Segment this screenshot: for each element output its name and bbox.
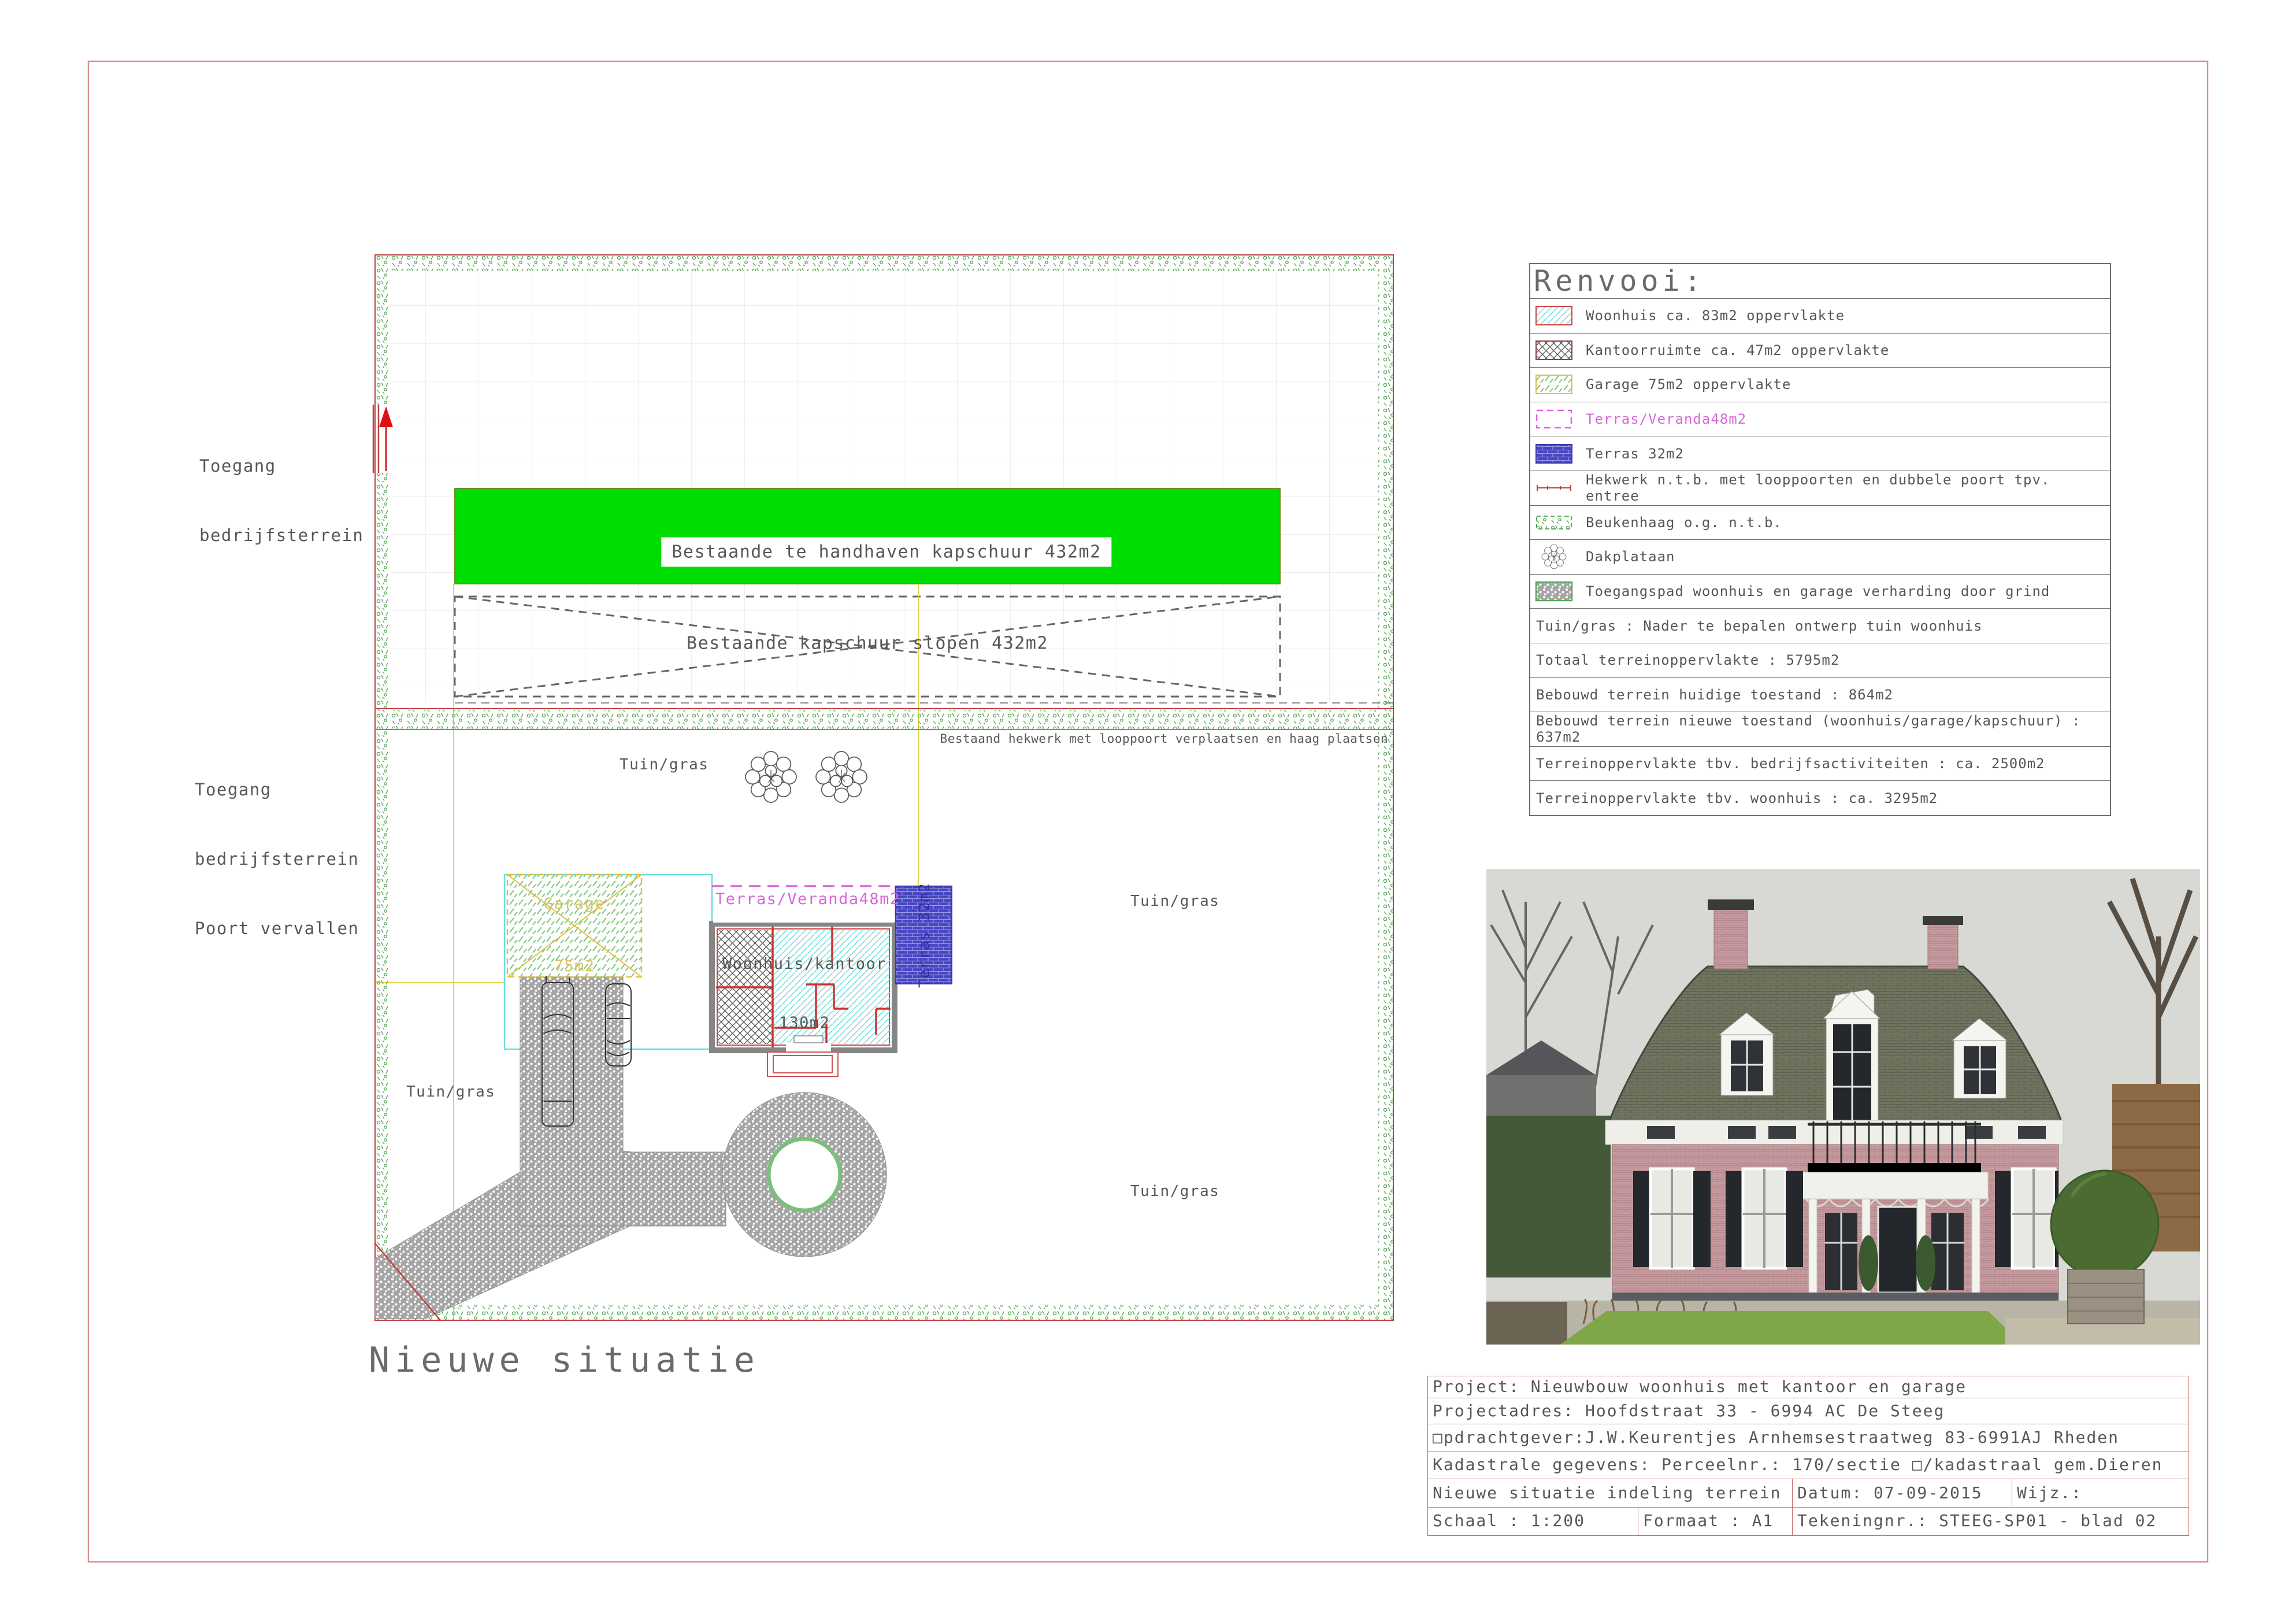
legend-row: Hekwerk n.t.b. met looppoorten en dubbel… bbox=[1530, 471, 2110, 506]
porch bbox=[1800, 1172, 1989, 1296]
legend-row: Dakplataan bbox=[1530, 540, 2110, 575]
title-block: Project: Nieuwbouw woonhuis met kantoor … bbox=[1427, 1376, 2189, 1536]
project-address: Projectadres: Hoofdstraat 33 - 6994 AC D… bbox=[1428, 1398, 2189, 1424]
topiary-cone-icon bbox=[1916, 1235, 1935, 1291]
date: Datum: 07-09-2015 bbox=[1792, 1479, 2012, 1507]
revision: Wijz.: bbox=[2012, 1479, 2189, 1507]
beukenhaag-swatch-icon bbox=[1530, 512, 1586, 534]
veranda-dashed-swatch-icon bbox=[1530, 408, 1586, 430]
topiary-ball-icon bbox=[2051, 1171, 2158, 1278]
legend-row: Bebouwd terrein nieuwe toestand (woonhui… bbox=[1530, 712, 2110, 747]
grind-gravel-swatch-icon bbox=[1530, 580, 1586, 602]
drawing-name: Nieuwe situatie indeling terrein bbox=[1428, 1479, 1792, 1507]
topiary-cone-icon bbox=[1859, 1235, 1878, 1291]
access-label-bottom: Toegang bedrijfsterrein Poort vervallen bbox=[195, 732, 359, 963]
woonhuis-label: Woonhuis/kantoor 130m2 bbox=[722, 915, 886, 1053]
kapschuur-keep-label: Bestaande te handhaven kapschuur 432m2 bbox=[661, 538, 1111, 567]
woonhuis-hatch-swatch-icon bbox=[1530, 305, 1586, 327]
terras-solid-swatch-icon bbox=[1530, 443, 1586, 465]
dakplataan-tree-swatch-icon bbox=[1530, 544, 1586, 569]
format: Formaat : A1 bbox=[1638, 1508, 1792, 1535]
legend-table: Renvooi: Woonhuis ca. 83m2 oppervlakte K… bbox=[1529, 263, 2111, 816]
entrance-porch bbox=[767, 1052, 838, 1076]
kantoor-crosshatch-swatch-icon bbox=[1530, 339, 1586, 361]
cadastral-data: Kadastrale gegevens: Perceelnr.: 170/sec… bbox=[1428, 1451, 2189, 1479]
legend-row: Garage 75m2 oppervlakte bbox=[1530, 368, 2110, 402]
legend-row: Tuin/gras : Nader te bepalen ontwerp tui… bbox=[1530, 609, 2110, 643]
site-plan bbox=[373, 255, 1393, 1320]
legend-row: Terras 32m2 bbox=[1530, 436, 2110, 471]
legend-row: Terreinoppervlakte tbv. woonhuis : ca. 3… bbox=[1530, 781, 2110, 815]
planter-box bbox=[2068, 1269, 2144, 1324]
garage-label: Garage 75m2 bbox=[544, 852, 606, 998]
gate-bedrijfsterrein bbox=[373, 405, 393, 473]
veranda-label: Terras/Veranda48m2 bbox=[715, 890, 900, 908]
legend-row: Terras/Veranda48m2 bbox=[1530, 402, 2110, 437]
plan-title: Nieuwe situatie bbox=[369, 1340, 760, 1380]
project-title: Project: Nieuwbouw woonhuis met kantoor … bbox=[1428, 1376, 2189, 1398]
legend-row: Toegangspad woonhuis en garage verhardin… bbox=[1530, 575, 2110, 609]
tuin-gras-label: Tuin/gras bbox=[406, 1083, 495, 1101]
legend-row: Bebouwd terrein huidige toestand : 864m2 bbox=[1530, 678, 2110, 713]
lawn bbox=[1560, 1311, 2023, 1345]
legend-row: Woonhuis ca. 83m2 oppervlakte bbox=[1530, 299, 2110, 334]
access-label-top: Toegang bedrijfsterrein bbox=[199, 408, 363, 570]
tuin-gras-label: Tuin/gras bbox=[1130, 1183, 1219, 1200]
tuin-gras-label: Tuin/gras bbox=[620, 756, 709, 773]
legend-row: Terreinoppervlakte tbv. bedrijfsactivite… bbox=[1530, 747, 2110, 782]
loop-island bbox=[769, 1139, 840, 1210]
terras32-label: Terras 32m2 bbox=[916, 883, 933, 988]
kapschuur-keep-area bbox=[455, 488, 1280, 584]
house-photo bbox=[1486, 869, 2200, 1345]
hekwerk-line-swatch-icon bbox=[1530, 477, 1586, 499]
kapschuur-demolish-label: Bestaande kapschuur slopen 432m2 bbox=[687, 634, 1048, 654]
client: □pdrachtgever:J.W.Keurentjes Arnhemsestr… bbox=[1428, 1424, 2189, 1451]
legend-title: Renvooi: bbox=[1530, 264, 2110, 299]
front-door bbox=[1878, 1207, 1917, 1293]
drawing-number: Tekeningnr.: STEEG-SP01 - blad 02 bbox=[1792, 1508, 2189, 1535]
dakplataan-tree-icon bbox=[745, 751, 796, 802]
tuin-gras-label: Tuin/gras bbox=[1130, 893, 1219, 910]
scale: Schaal : 1:200 bbox=[1428, 1508, 1638, 1535]
garage-hatch-swatch-icon bbox=[1530, 373, 1586, 395]
legend-row: Kantoorruimte ca. 47m2 oppervlakte bbox=[1530, 334, 2110, 368]
legend-row: Totaal terreinoppervlakte : 5795m2 bbox=[1530, 643, 2110, 678]
legend-row: Beukenhaag o.g. n.t.b. bbox=[1530, 506, 2110, 540]
dakplataan-tree-icon bbox=[816, 751, 867, 802]
fence-note-label: Bestaand hekwerk met looppoort verplaats… bbox=[940, 732, 1388, 746]
